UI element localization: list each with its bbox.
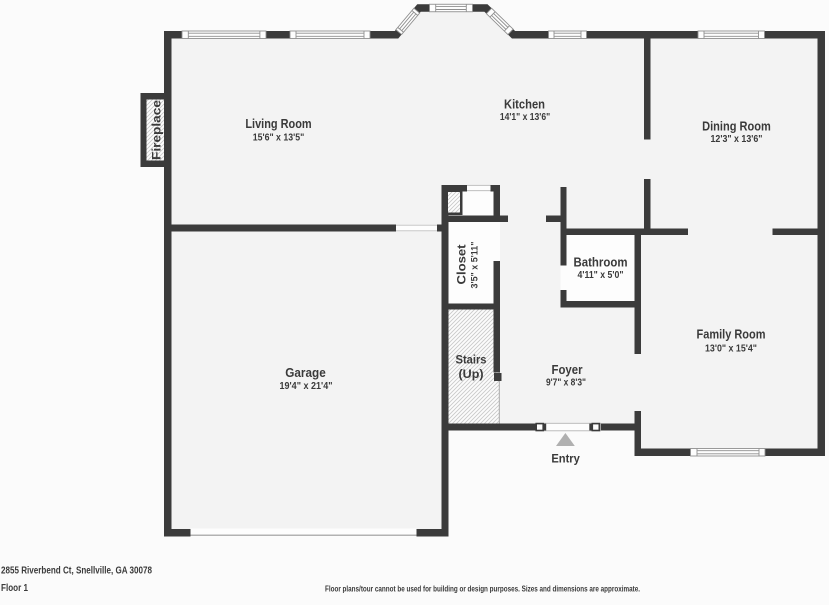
svg-text:14'1" x 13'6": 14'1" x 13'6"	[500, 112, 551, 123]
svg-text:Bathroom: Bathroom	[574, 255, 628, 270]
svg-text:Garage: Garage	[285, 365, 326, 380]
svg-text:2855 Riverbend Ct, Snellville,: 2855 Riverbend Ct, Snellville, GA 30078	[1, 565, 152, 576]
svg-text:Floor plans/tour cannot be use: Floor plans/tour cannot be used for buil…	[325, 584, 640, 594]
svg-text:Stairs: Stairs	[456, 353, 487, 367]
svg-text:Fireplace: Fireplace	[149, 100, 163, 160]
svg-text:13'0" x 15'4": 13'0" x 15'4"	[705, 343, 757, 354]
svg-text:Dining Room: Dining Room	[702, 119, 771, 134]
svg-text:9'7" x 8'3": 9'7" x 8'3"	[546, 377, 586, 388]
svg-text:3'5" x 5'11": 3'5" x 5'11"	[470, 242, 480, 289]
svg-text:4'11" x 5'0": 4'11" x 5'0"	[578, 270, 624, 281]
svg-text:12'3" x 13'6": 12'3" x 13'6"	[711, 134, 763, 145]
svg-text:Kitchen: Kitchen	[504, 97, 545, 112]
svg-text:Foyer: Foyer	[552, 362, 583, 377]
svg-text:Floor 1: Floor 1	[1, 583, 28, 594]
svg-text:Entry: Entry	[551, 453, 580, 465]
svg-text:Closet: Closet	[456, 244, 468, 284]
svg-text:15'6" x 13'5": 15'6" x 13'5"	[253, 133, 305, 144]
svg-text:Family Room: Family Room	[697, 327, 766, 342]
svg-text:19'4" x 21'4": 19'4" x 21'4"	[280, 381, 333, 392]
svg-text:Living Room: Living Room	[245, 116, 311, 131]
svg-text:(Up): (Up)	[459, 367, 484, 381]
